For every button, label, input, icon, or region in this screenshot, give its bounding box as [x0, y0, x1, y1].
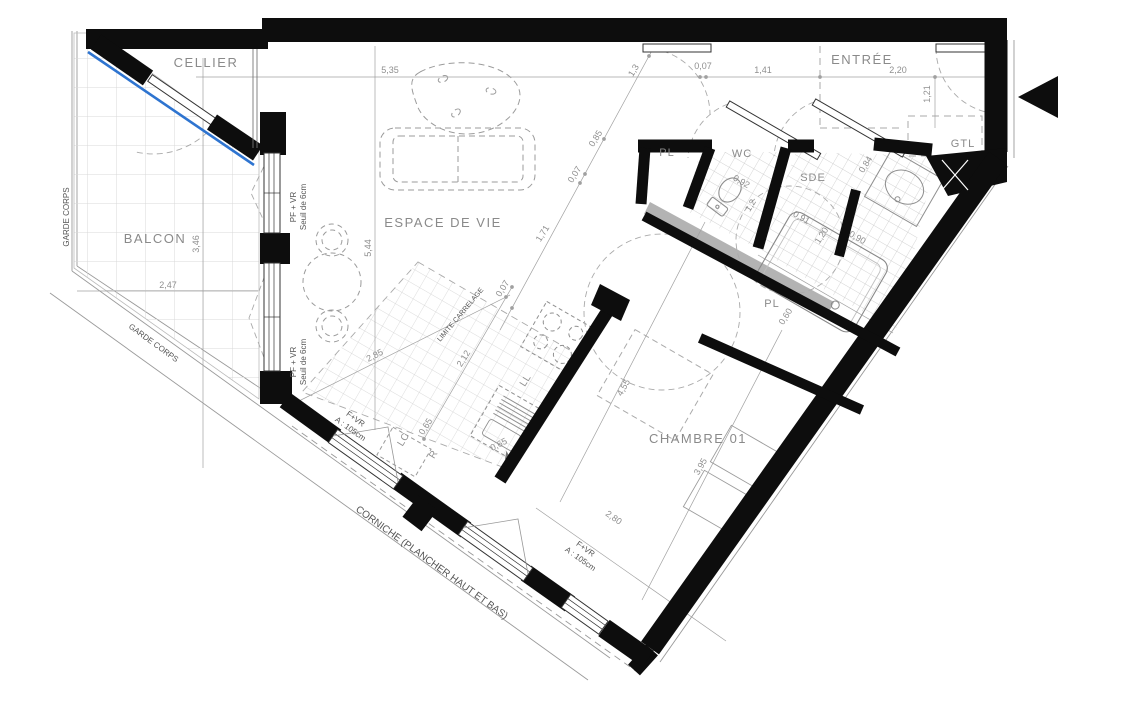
dim-247: 2,47 [159, 280, 177, 290]
wardrobe-dashed [597, 330, 713, 441]
svg-text:PF + VR: PF + VR [289, 347, 298, 378]
svg-text:PF + VR: PF + VR [289, 192, 298, 223]
room-label-entree: ENTRÉE [831, 52, 893, 67]
dim-220: 2,20 [889, 65, 907, 75]
note-garde-corps-left: GARDE CORPS [62, 187, 71, 246]
dining-table [303, 224, 361, 342]
floor-plan-canvas: CELLIER BALCON ESPACE DE VIE ENTRÉE PL W… [0, 0, 1123, 718]
room-label-pl2: PL [764, 298, 779, 310]
floor-plan-page: { "drawing": { "title": "apartment-floor… [0, 0, 1123, 718]
window-label-4: F+VR A : 105cm [563, 539, 597, 573]
window-left-1 [264, 153, 280, 233]
appliance-label-lc: LC [396, 431, 413, 449]
room-label-chambre: CHAMBRE 01 [649, 431, 747, 446]
note-corniche: CORNICHE (PLANCHER HAUT ET BAS) [353, 504, 509, 622]
svg-text:Seuil de 6cm: Seuil de 6cm [299, 184, 308, 231]
appliance-label-r: R [427, 448, 440, 460]
cellier-side-wall [253, 49, 257, 148]
dim-455: 4,55 [615, 377, 632, 397]
dim-13: 1,3 [626, 62, 641, 78]
svg-text:Seuil de 6cm: Seuil de 6cm [299, 339, 308, 386]
room-label-pl1: PL [659, 147, 674, 159]
room-label-gtl: GTL [951, 138, 975, 150]
window-label-2: PF + VR Seuil de 6cm [289, 339, 308, 386]
dim-535: 5,35 [381, 65, 399, 75]
room-label-espace: ESPACE DE VIE [384, 215, 502, 230]
dim-121: 1,21 [922, 85, 932, 103]
window-bottom-2 [458, 521, 532, 580]
dim-085: 0,85 [587, 128, 605, 148]
room-label-sde: SDE [800, 172, 826, 184]
dim-007a: 0,07 [694, 61, 712, 71]
entry-arrow-icon [1018, 76, 1058, 118]
coffee-table [412, 63, 520, 134]
room-label-wc: WC [732, 148, 752, 160]
dim-395: 3,95 [692, 456, 709, 476]
room-label-cellier: CELLIER [174, 55, 239, 70]
dim-544: 5,44 [363, 239, 373, 257]
window-left-2 [264, 263, 280, 371]
dim-141: 1,41 [754, 65, 772, 75]
room-label-balcon: BALCON [124, 231, 186, 246]
sofa [380, 128, 535, 190]
window-label-1: PF + VR Seuil de 6cm [289, 184, 308, 231]
dim-346: 3,46 [191, 235, 201, 253]
dim-280: 2,80 [604, 508, 624, 526]
